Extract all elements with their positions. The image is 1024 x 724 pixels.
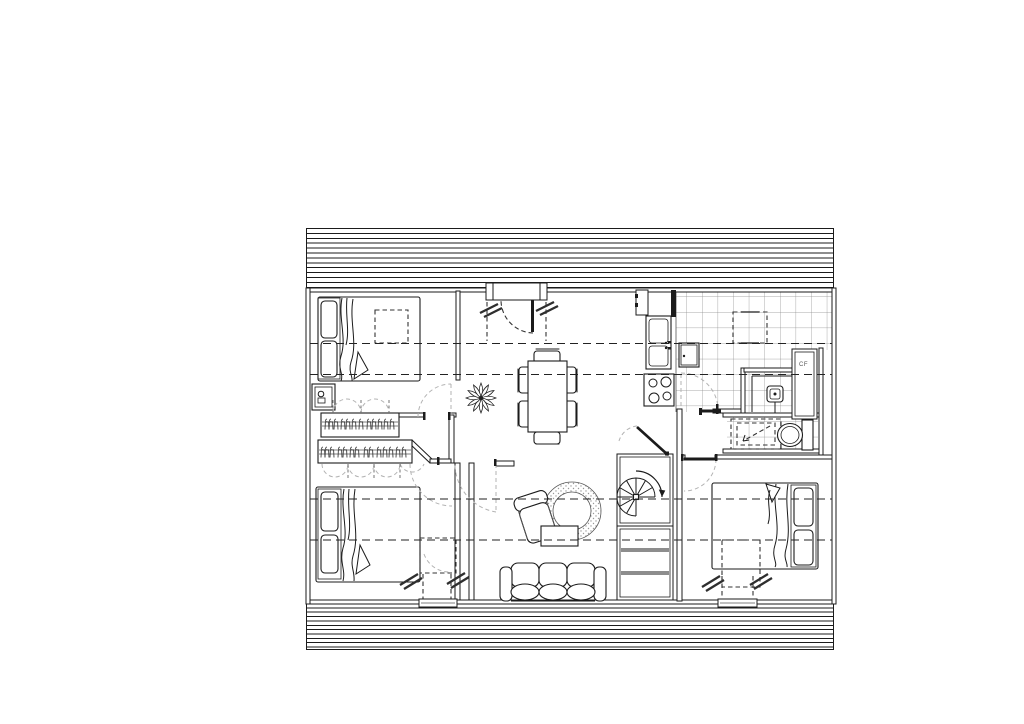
chair bbox=[534, 432, 560, 444]
spiral-staircase bbox=[617, 426, 673, 526]
pillow bbox=[321, 492, 338, 531]
plant-icon bbox=[466, 383, 496, 413]
living-door-arc bbox=[455, 463, 496, 512]
toilet-cistern bbox=[802, 420, 813, 450]
sofa bbox=[500, 563, 606, 601]
pillow bbox=[321, 341, 337, 377]
dishwasher bbox=[679, 343, 699, 367]
entry-door-swing-arc bbox=[501, 300, 533, 333]
sofa-arm bbox=[500, 567, 512, 601]
pillow bbox=[321, 301, 337, 338]
water-heater-closet: CF bbox=[792, 349, 817, 419]
coffee-table bbox=[541, 526, 578, 546]
wardrobe-bottom bbox=[318, 440, 424, 480]
pillow bbox=[794, 488, 813, 526]
stair-door-leaf bbox=[637, 427, 668, 455]
entry-door-leaf bbox=[531, 300, 534, 332]
sofa-arm bbox=[594, 567, 606, 601]
pillow bbox=[321, 535, 338, 573]
bedroom3-door-arc bbox=[684, 459, 716, 491]
drawing-sheet: CF bbox=[0, 0, 1024, 724]
entry-door bbox=[480, 283, 558, 341]
dining-set bbox=[518, 349, 577, 444]
small-wall-unit bbox=[312, 384, 335, 410]
bed-bottom-right bbox=[712, 483, 818, 569]
floor-plan-canvas: CF bbox=[0, 0, 1024, 724]
bed-top-left bbox=[318, 297, 420, 381]
pillow bbox=[794, 530, 813, 565]
bed-bottom-left bbox=[316, 487, 420, 582]
bedroom1-door-arc bbox=[418, 384, 451, 417]
water-heater-label: CF bbox=[799, 362, 808, 368]
storage-shaft bbox=[617, 526, 673, 600]
dining-table bbox=[528, 361, 567, 432]
